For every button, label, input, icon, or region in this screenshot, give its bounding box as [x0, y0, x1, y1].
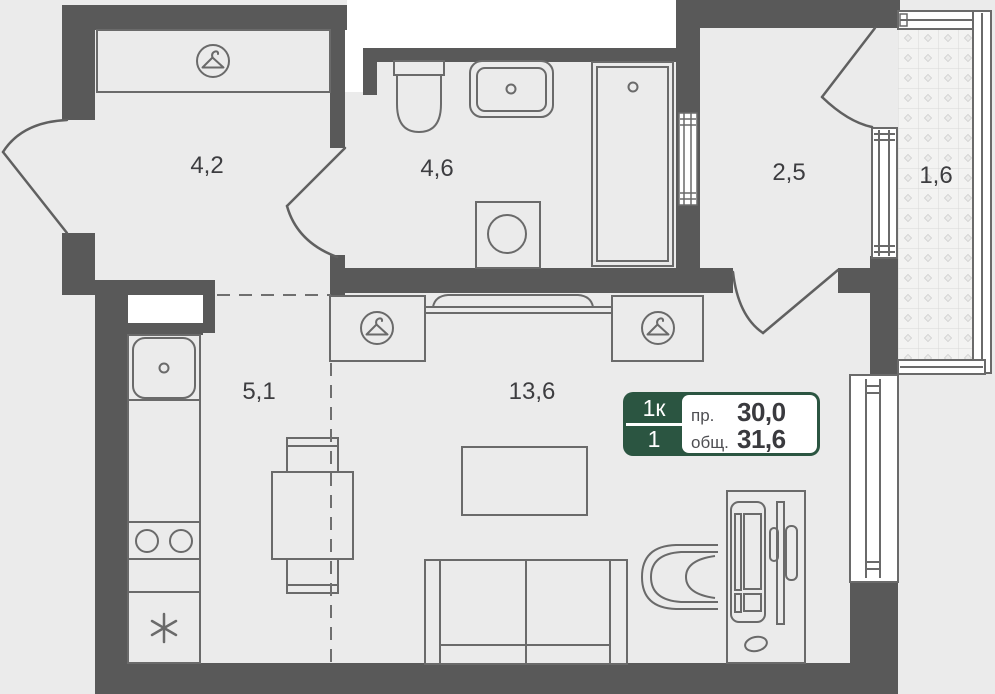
hall-balcony-partition-window [872, 128, 897, 258]
wall-segment [676, 0, 900, 28]
room-label-kitchen: 5,1 [242, 378, 275, 405]
floor-background [0, 0, 995, 694]
room-label-hall: 4,2 [190, 152, 223, 179]
wall-segment [127, 323, 203, 335]
vent-duct [679, 113, 697, 205]
wall-segment [62, 5, 95, 120]
room-label-living: 13,6 [509, 378, 556, 405]
wall-segment [95, 663, 898, 694]
void-strip [345, 28, 363, 92]
room-label-balcony: 1,6 [919, 162, 952, 189]
floor-plan: 4,2 4,6 2,5 1,6 5,1 13,6 1к 1 пр. 30,0 о… [0, 0, 995, 694]
wall-segment [363, 48, 377, 95]
area-badge: 1к 1 пр. 30,0 общ. 31,6 [623, 392, 820, 456]
badge-rooms: 1к [626, 395, 682, 426]
badge-variant: 1 [626, 426, 682, 454]
wall-segment [62, 5, 347, 30]
projected-label: пр. [691, 406, 737, 426]
wall-segment [363, 48, 680, 62]
void-above-bathroom [347, 0, 676, 48]
wall-segment [330, 268, 733, 293]
room-label-hallway: 2,5 [772, 159, 805, 186]
balcony-window-top [898, 11, 985, 29]
balcony-floor [898, 28, 975, 362]
balcony-window-bottom [898, 360, 985, 374]
wall-segment [330, 5, 345, 148]
wall-segment [62, 280, 215, 295]
badge-total-row: общ. 31,6 [691, 424, 817, 451]
total-label: общ. [691, 433, 737, 453]
kitchen-shaft [127, 295, 203, 323]
badge-left-column: 1к 1 [626, 395, 682, 453]
wall-segment [838, 268, 870, 293]
badge-right-column: пр. 30,0 общ. 31,6 [682, 395, 817, 453]
badge-projected-row: пр. 30,0 [691, 397, 817, 424]
living-room-window [850, 375, 898, 582]
balcony-window-right [973, 11, 991, 373]
floor-plan-drawing: 4,2 4,6 2,5 1,6 5,1 13,6 [0, 0, 995, 694]
wall-segment [850, 582, 898, 694]
wall-segment [95, 295, 128, 663]
room-label-bathroom: 4,6 [420, 155, 453, 182]
wall-segment [203, 295, 215, 333]
total-value: 31,6 [737, 424, 786, 455]
dining-table [272, 472, 353, 559]
wall-segment [870, 256, 898, 375]
